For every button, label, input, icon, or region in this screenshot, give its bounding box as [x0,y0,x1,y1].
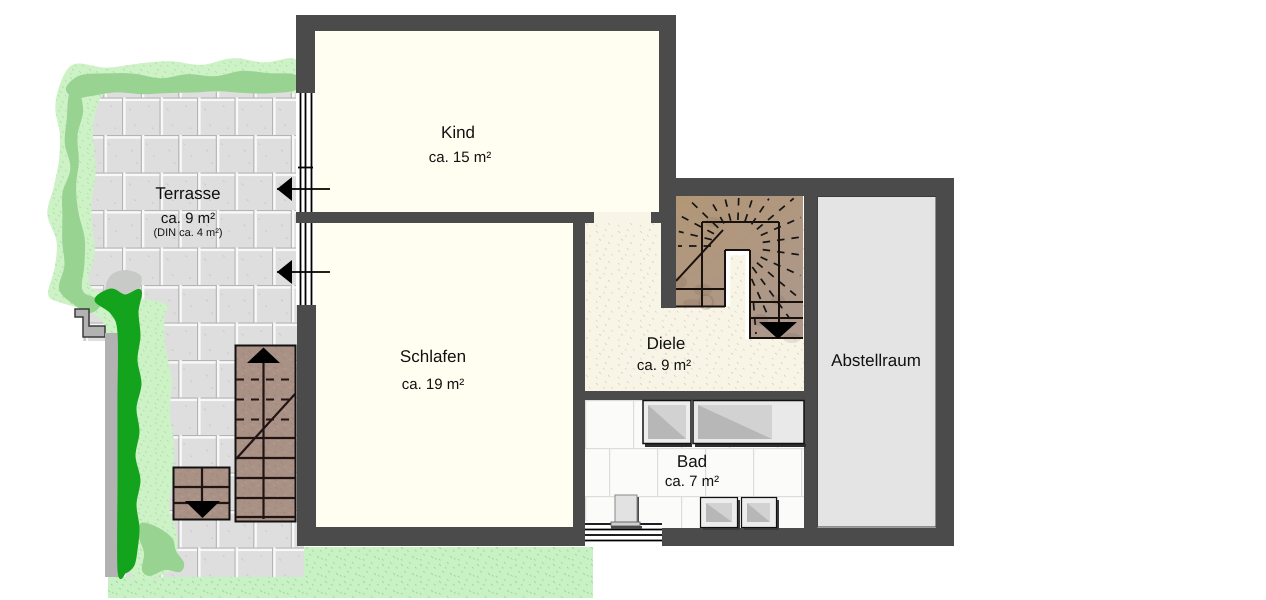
svg-text:ca. 9 m²: ca. 9 m² [637,357,691,374]
svg-text:Schlafen: Schlafen [400,347,466,366]
svg-text:ca. 19 m²: ca. 19 m² [402,376,465,393]
svg-text:ca. 9 m²: ca. 9 m² [161,210,215,227]
svg-text:Diele: Diele [647,334,686,353]
svg-text:Kind: Kind [441,123,475,142]
svg-text:Bad: Bad [677,452,707,471]
svg-text:(DIN ca. 4 m²): (DIN ca. 4 m²) [153,227,222,239]
svg-text:Terrasse: Terrasse [155,184,220,203]
svg-text:ca. 15 m²: ca. 15 m² [429,149,492,166]
svg-text:ca. 7 m²: ca. 7 m² [665,473,719,490]
svg-text:Abstellraum: Abstellraum [831,351,921,370]
